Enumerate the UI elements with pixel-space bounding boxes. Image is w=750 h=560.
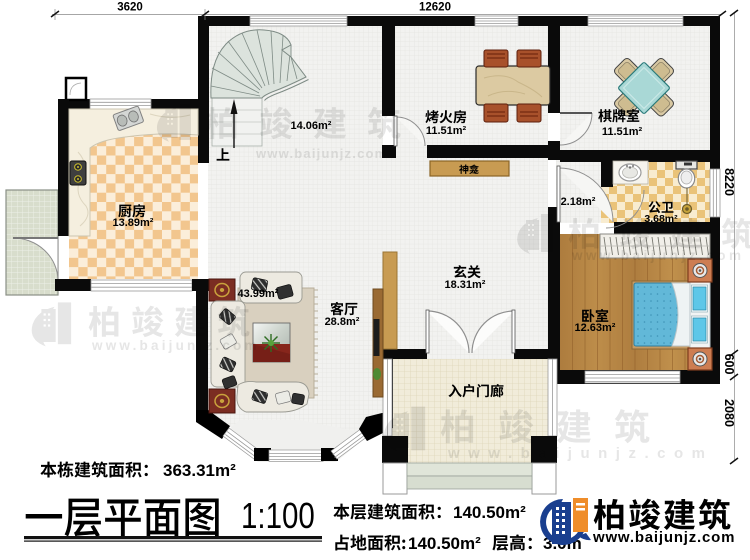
svg-text:www.baijunjz.com: www.baijunjz.com [255, 146, 387, 161]
svg-text:11.51m²: 11.51m² [426, 125, 467, 137]
svg-text:12620: 12620 [419, 2, 451, 14]
svg-text:43.99m²: 43.99m² [238, 288, 279, 300]
svg-text:28.8m²: 28.8m² [325, 316, 360, 328]
svg-text:18.31m²: 18.31m² [445, 279, 486, 291]
svg-text:13.89m²: 13.89m² [113, 217, 154, 229]
svg-text:140.50m²: 140.50m² [408, 534, 481, 553]
svg-text:www.baijunjz.com: www.baijunjz.com [91, 338, 260, 353]
svg-text:8220: 8220 [722, 168, 736, 196]
svg-text:2.18m²: 2.18m² [561, 196, 596, 208]
svg-text:3620: 3620 [117, 2, 143, 14]
svg-text:www.baijunjz.com: www.baijunjz.com [592, 529, 735, 546]
svg-text:140.50m²: 140.50m² [453, 503, 526, 522]
svg-text:2080: 2080 [722, 399, 736, 427]
svg-text:600: 600 [722, 354, 736, 375]
svg-text:12.63m²: 12.63m² [575, 322, 616, 334]
svg-text:11.51m²: 11.51m² [602, 126, 643, 138]
svg-text:3.68m²: 3.68m² [644, 213, 678, 225]
svg-text:14.06m²: 14.06m² [291, 120, 332, 132]
svg-text:www.baijunjz.com: www.baijunjz.com [447, 445, 713, 462]
svg-text:www.baijunjz.com: www.baijunjz.com [571, 248, 745, 263]
svg-text:363.31m²: 363.31m² [163, 461, 236, 480]
svg-text:1:100: 1:100 [241, 495, 315, 535]
